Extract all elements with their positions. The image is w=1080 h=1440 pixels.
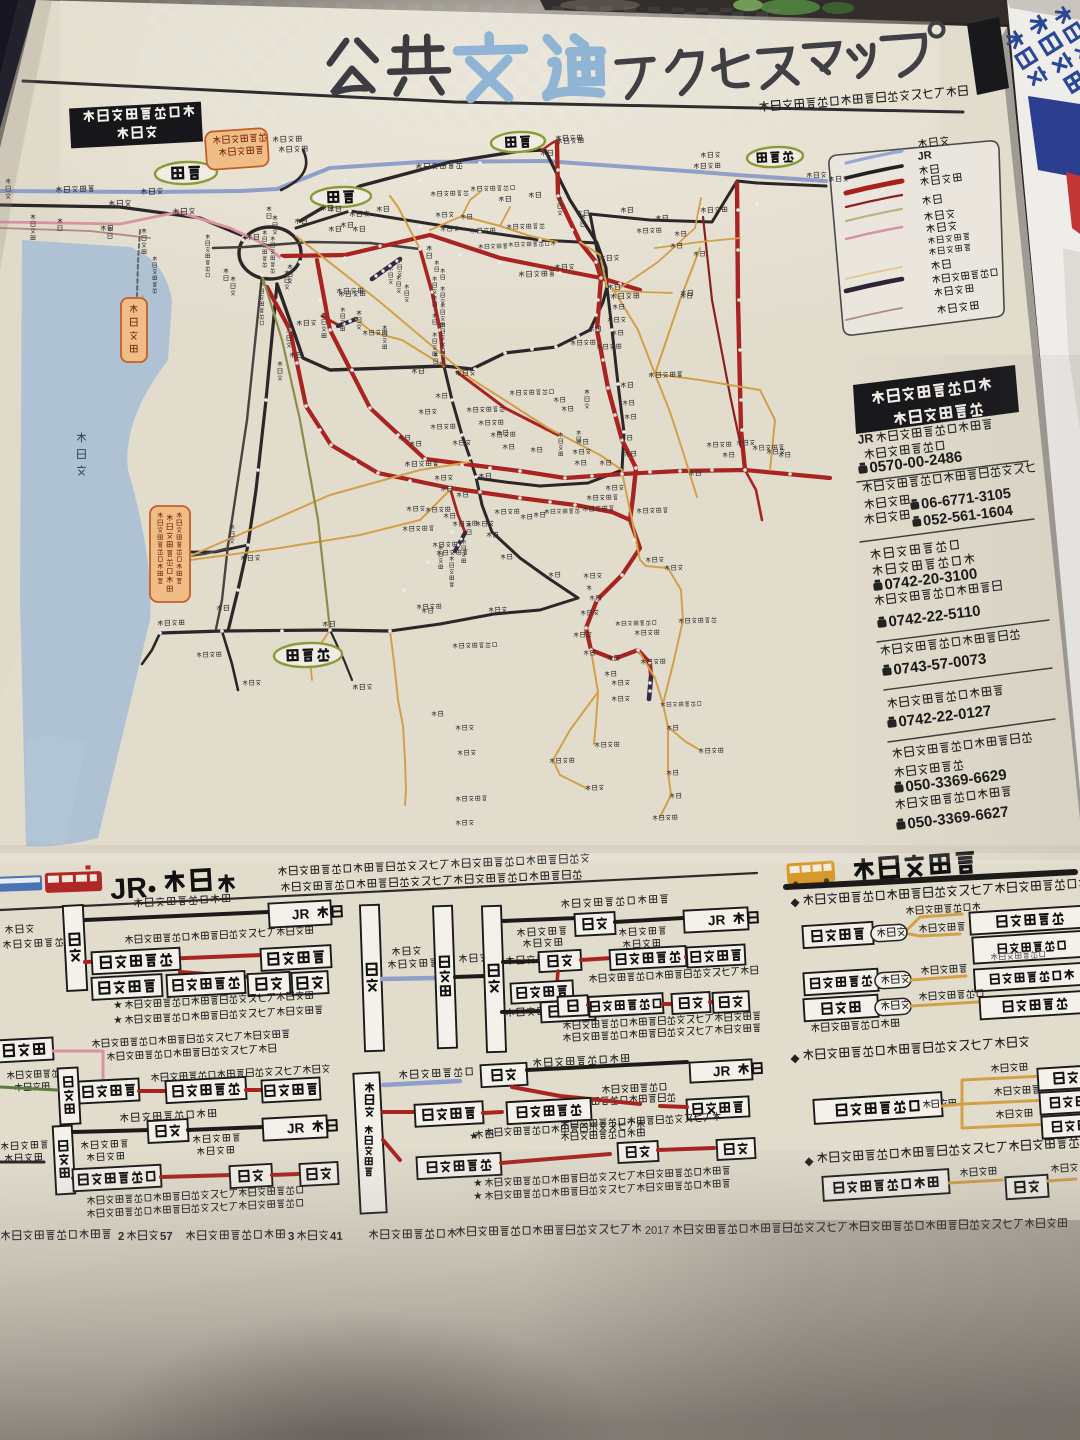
svg-text:JR: JR <box>713 1063 731 1079</box>
svg-text:JR: JR <box>292 906 310 922</box>
svg-text:◆: ◆ <box>789 896 800 909</box>
svg-text:★: ★ <box>470 1131 480 1141</box>
svg-text:★: ★ <box>114 1015 124 1025</box>
svg-text:JR: JR <box>917 149 932 163</box>
svg-text:★: ★ <box>114 1000 124 1010</box>
svg-text:◆: ◆ <box>789 1052 800 1065</box>
svg-text:JR: JR <box>708 912 726 928</box>
svg-text:JR: JR <box>287 1120 305 1136</box>
svg-text:JR: JR <box>109 872 148 906</box>
